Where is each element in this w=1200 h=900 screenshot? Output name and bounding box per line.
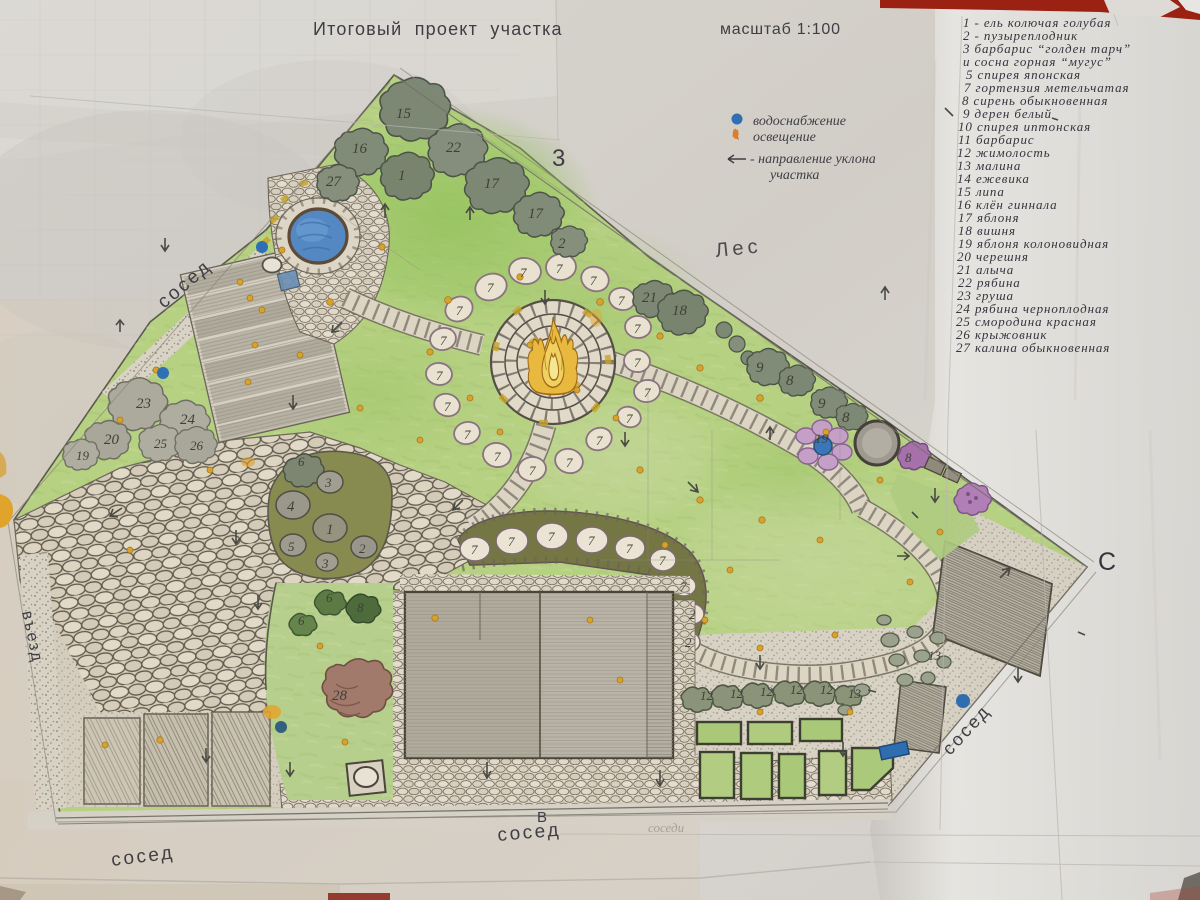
- svg-text:12: 12: [820, 682, 834, 697]
- svg-text:12: 12: [790, 682, 804, 697]
- svg-text:7: 7: [494, 449, 501, 464]
- svg-text:6: 6: [298, 613, 305, 628]
- svg-text:7: 7: [566, 455, 573, 470]
- svg-text:7: 7: [626, 411, 633, 426]
- svg-text:12: 12: [730, 686, 744, 701]
- svg-text:7: 7: [471, 542, 478, 557]
- svg-text:7: 7: [520, 265, 527, 280]
- svg-text:19: 19: [76, 448, 90, 463]
- svg-text:15: 15: [396, 106, 412, 122]
- svg-text:2: 2: [558, 236, 566, 252]
- svg-text:8: 8: [842, 410, 850, 426]
- svg-text:5: 5: [288, 539, 295, 554]
- svg-text:25: 25: [154, 436, 168, 451]
- svg-text:16: 16: [352, 141, 368, 157]
- svg-text:7: 7: [440, 333, 447, 348]
- svg-text:7: 7: [508, 534, 515, 549]
- svg-text:участка: участка: [768, 168, 819, 183]
- svg-text:27 калина обыкновенная: 27 калина обыкновенная: [956, 340, 1110, 355]
- svg-text:3: 3: [321, 556, 329, 571]
- svg-text:соседи: соседи: [648, 820, 685, 835]
- svg-text:9: 9: [818, 396, 826, 412]
- svg-text:7: 7: [444, 399, 451, 414]
- svg-text:22: 22: [446, 140, 462, 156]
- svg-text:3: 3: [324, 475, 332, 490]
- svg-text:7: 7: [487, 280, 494, 295]
- svg-text:С: С: [1098, 548, 1116, 576]
- svg-text:9: 9: [756, 360, 764, 376]
- svg-text:13: 13: [928, 648, 942, 663]
- svg-text:7: 7: [436, 368, 443, 383]
- svg-text:7: 7: [626, 541, 633, 556]
- svg-text:7: 7: [659, 553, 666, 568]
- svg-text:- направление уклона: - направление уклона: [750, 152, 876, 167]
- svg-text:18: 18: [672, 303, 688, 319]
- svg-text:1: 1: [326, 522, 334, 538]
- svg-text:24: 24: [180, 412, 196, 428]
- svg-text:23: 23: [136, 396, 151, 412]
- svg-text:13: 13: [848, 686, 862, 701]
- svg-text:7: 7: [464, 427, 471, 442]
- svg-text:8: 8: [357, 600, 364, 615]
- svg-text:21: 21: [642, 290, 657, 306]
- svg-text:7: 7: [634, 321, 641, 336]
- svg-text:7: 7: [644, 385, 651, 400]
- svg-text:6: 6: [326, 590, 333, 605]
- svg-text:28: 28: [332, 688, 348, 704]
- svg-text:7: 7: [588, 533, 595, 548]
- svg-text:7: 7: [618, 293, 625, 308]
- svg-text:8: 8: [905, 450, 912, 465]
- svg-text:7: 7: [590, 273, 597, 288]
- svg-text:7: 7: [596, 433, 603, 448]
- svg-text:7: 7: [456, 303, 463, 318]
- svg-text:27: 27: [326, 174, 343, 190]
- svg-text:Итоговый проект участка: Итоговый проект участка: [313, 19, 563, 39]
- svg-text:8: 8: [786, 373, 794, 389]
- svg-text:7: 7: [529, 463, 536, 478]
- svg-text:19: 19: [815, 431, 829, 446]
- svg-text:17: 17: [484, 176, 501, 192]
- svg-text:освещение: освещение: [753, 130, 816, 145]
- svg-text:4: 4: [287, 499, 295, 515]
- svg-text:7: 7: [548, 529, 555, 544]
- svg-text:12: 12: [700, 688, 714, 703]
- svg-text:12: 12: [760, 684, 774, 699]
- svg-text:водоснабжение: водоснабжение: [753, 114, 846, 129]
- svg-text:7: 7: [680, 579, 687, 594]
- svg-text:3: 3: [552, 145, 565, 172]
- svg-text:2: 2: [359, 541, 366, 556]
- svg-text:7: 7: [556, 261, 563, 276]
- svg-text:20: 20: [104, 432, 120, 448]
- svg-text:2: 2: [685, 635, 692, 650]
- svg-text:7: 7: [634, 355, 641, 370]
- svg-text:6: 6: [298, 454, 305, 469]
- svg-text:26: 26: [190, 438, 204, 453]
- svg-text:1: 1: [398, 168, 406, 184]
- svg-text:2: 2: [689, 607, 696, 622]
- svg-text:17: 17: [528, 206, 545, 222]
- svg-text:масштаб 1:100: масштаб 1:100: [720, 21, 841, 38]
